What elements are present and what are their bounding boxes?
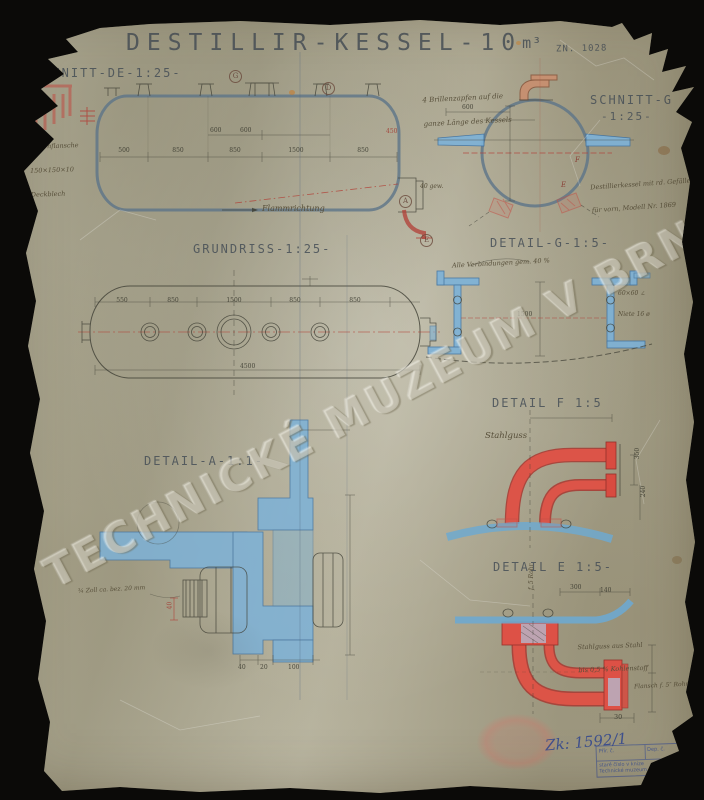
detail-g-label: DETAIL-G-1:5- <box>490 236 610 250</box>
dim-label-red: 450 <box>386 128 397 135</box>
section-marker-d: D <box>322 82 335 95</box>
drawing-title: DESTILLIR-KESSEL-10m³ <box>126 30 542 56</box>
dim-label: 300 <box>570 584 581 591</box>
stain-spot <box>672 556 682 564</box>
scanned-drawing-stage: DESTILLIR-KESSEL-10m³ ZN. 1028 SCHNITT-D… <box>0 0 704 800</box>
schnitt-g-label: SCHNITT-G <box>590 93 673 107</box>
rust-spot <box>289 90 295 95</box>
dim-label: 850 <box>161 297 185 304</box>
dim-label: 500 <box>112 147 136 154</box>
detail-f-material-label: Stahlguss <box>485 431 527 441</box>
dim-label: 240 <box>640 486 647 497</box>
rust-spot <box>516 41 521 45</box>
stamp-cell-right: Dep. č. <box>645 743 693 759</box>
red-stamp-mark <box>26 86 72 130</box>
dim-label: 850 <box>283 297 307 304</box>
dim-label: 1500 <box>517 311 532 318</box>
dim-total-label: 4500 <box>240 363 255 370</box>
detail-marker-e: E <box>561 181 566 189</box>
dim-label: 850 <box>343 297 367 304</box>
title-text: DESTILLIR-KESSEL-10 <box>126 30 522 56</box>
stamp-cell-left: Přír. č. <box>597 745 646 761</box>
dim-label: 850 <box>166 147 190 154</box>
pencil-smudge <box>150 610 270 690</box>
detail-e-label: DETAIL E 1:5- <box>493 560 613 574</box>
museum-accession-stamp: Přír. č. Dep. č. staré číslo v knize Tec… <box>595 742 694 777</box>
detail-e-vertical-note: f. 5 Rohr <box>528 564 535 590</box>
section-marker-e: E <box>420 234 433 247</box>
dim-label: 850 <box>351 147 375 154</box>
dim-label: 850 <box>223 147 247 154</box>
dim-label: 550 <box>110 297 134 304</box>
grundriss-drawing <box>78 270 440 395</box>
schnitt-g-scale: -1:25- <box>601 110 653 123</box>
section-marker-a: A <box>399 195 412 208</box>
detail-f-drawing <box>447 410 640 548</box>
dim-label: 1500 <box>284 147 308 154</box>
section-marker-g: G <box>229 70 242 83</box>
grundriss-label: GRUNDRISS-1:25- <box>193 242 331 256</box>
dim-label: 30 <box>614 713 622 721</box>
detail-f-label: DETAIL F 1:5 <box>492 396 603 410</box>
stain-spot <box>658 146 670 155</box>
schnitt-de-label: SCHNITT-DE-1:25- <box>34 66 182 80</box>
drawing-number: ZN. 1028 <box>556 44 608 55</box>
detail-e-material-note: Stahlguss aus Stahl bis 0,5 % Kohlenstof… <box>577 627 649 689</box>
schnitt-g-note-right: Destillierkessel mit rd. Gefälle für vor… <box>589 163 693 230</box>
detail-g-note-right: 60×60 ∠ Niete 16 ø <box>618 276 650 332</box>
schnitt-g-small-note: 40 gew. <box>420 183 443 190</box>
schnitt-de-note: 2 Kernflansche 150×150×10 Deckblech <box>28 125 80 215</box>
schnitt-de-drawing <box>80 83 432 239</box>
dim-label: 600 <box>462 104 473 111</box>
dim-label: 350 <box>634 448 641 459</box>
dim-label-red: 40 <box>166 602 173 610</box>
dim-label: 600 <box>240 127 251 134</box>
dim-label: 140 <box>600 587 611 594</box>
flame-direction-label: Flammrichtung <box>262 204 325 213</box>
dim-label: 100 <box>288 664 299 671</box>
drawing-sheet: DESTILLIR-KESSEL-10m³ ZN. 1028 SCHNITT-D… <box>0 0 704 800</box>
detail-a-label: DETAIL-A-1:1- <box>144 454 264 468</box>
title-unit: m³ <box>522 34 542 52</box>
detail-marker-f: F <box>575 156 580 164</box>
dim-label: 1500 <box>222 297 246 304</box>
dim-label: 600 <box>210 127 221 134</box>
